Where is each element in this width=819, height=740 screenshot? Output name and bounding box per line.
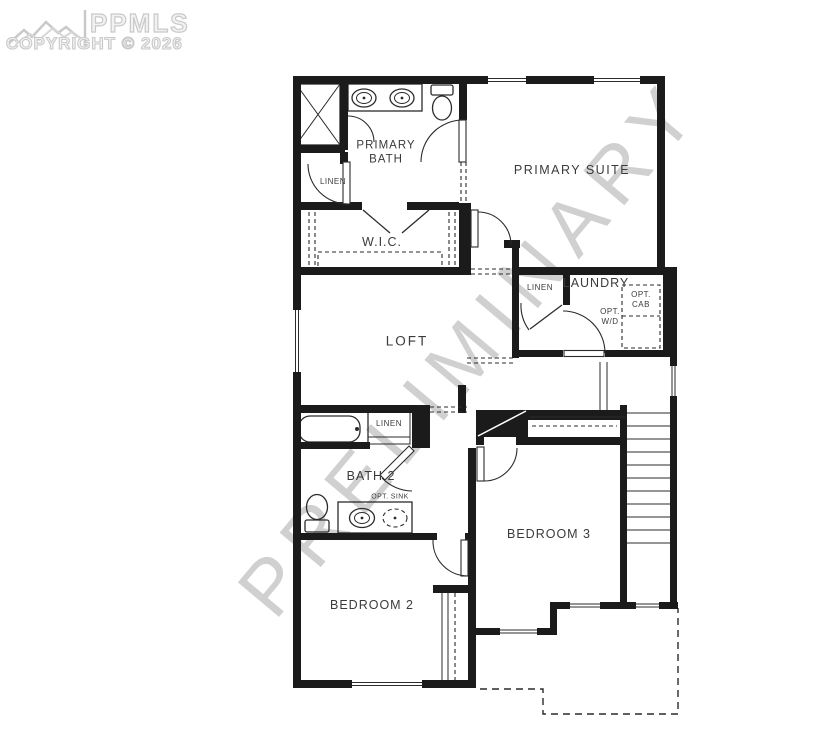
brand-watermark: PPMLS COPYRIGHT © 2026: [6, 6, 88, 57]
window: [636, 602, 659, 609]
copyright-text: COPYRIGHT © 2026: [6, 34, 183, 54]
window: [293, 310, 301, 372]
label-opt-cab: OPT. CAB: [631, 290, 651, 310]
cased-openings: [430, 162, 513, 412]
label-bedroom3: BEDROOM 3: [507, 527, 591, 543]
window: [500, 628, 537, 635]
label-laundry: LAUNDRY: [563, 276, 630, 292]
bedroom2-closet-doors: [442, 593, 455, 680]
shower-icon: [296, 84, 340, 153]
double-vanity-icon: [348, 84, 422, 111]
door-bedroom2: [433, 540, 468, 576]
door-primary-bath: [421, 120, 466, 162]
label-loft: LOFT: [386, 334, 429, 351]
door-bedroom3: [477, 447, 517, 481]
label-linen-primary: LINEN: [320, 177, 346, 187]
window: [594, 76, 640, 84]
label-opt-wd: OPT. W/D: [600, 307, 620, 327]
door-wic-double: [363, 210, 429, 233]
label-primary-suite: PRIMARY SUITE: [514, 163, 630, 179]
toilet-icon: [431, 85, 453, 120]
floorplan-page: PRELIMINARY: [0, 0, 819, 740]
label-opt-sink: OPT. SINK: [371, 494, 408, 503]
vanity-icon: [338, 502, 412, 533]
window: [488, 76, 526, 84]
floor-plan-drawing: [0, 0, 819, 740]
label-linen-laundry: LINEN: [527, 283, 553, 293]
window: [570, 602, 600, 609]
label-primary-bath: PRIMARY BATH: [356, 139, 415, 168]
label-bedroom2: BEDROOM 2: [330, 598, 414, 614]
bathtub-icon: [295, 412, 368, 446]
staircase: [600, 362, 670, 543]
label-bath2: BATH 2: [347, 469, 396, 485]
doors: [308, 116, 605, 576]
label-wic: W.I.C.: [362, 235, 402, 251]
roof-outline-dashed: [480, 608, 678, 714]
door-laundry: [563, 311, 605, 357]
window: [352, 680, 422, 688]
window: [670, 366, 677, 396]
label-linen-bath2: LINEN: [376, 419, 402, 429]
toilet-icon: [305, 495, 329, 533]
door-linen-laundry: [521, 303, 562, 330]
